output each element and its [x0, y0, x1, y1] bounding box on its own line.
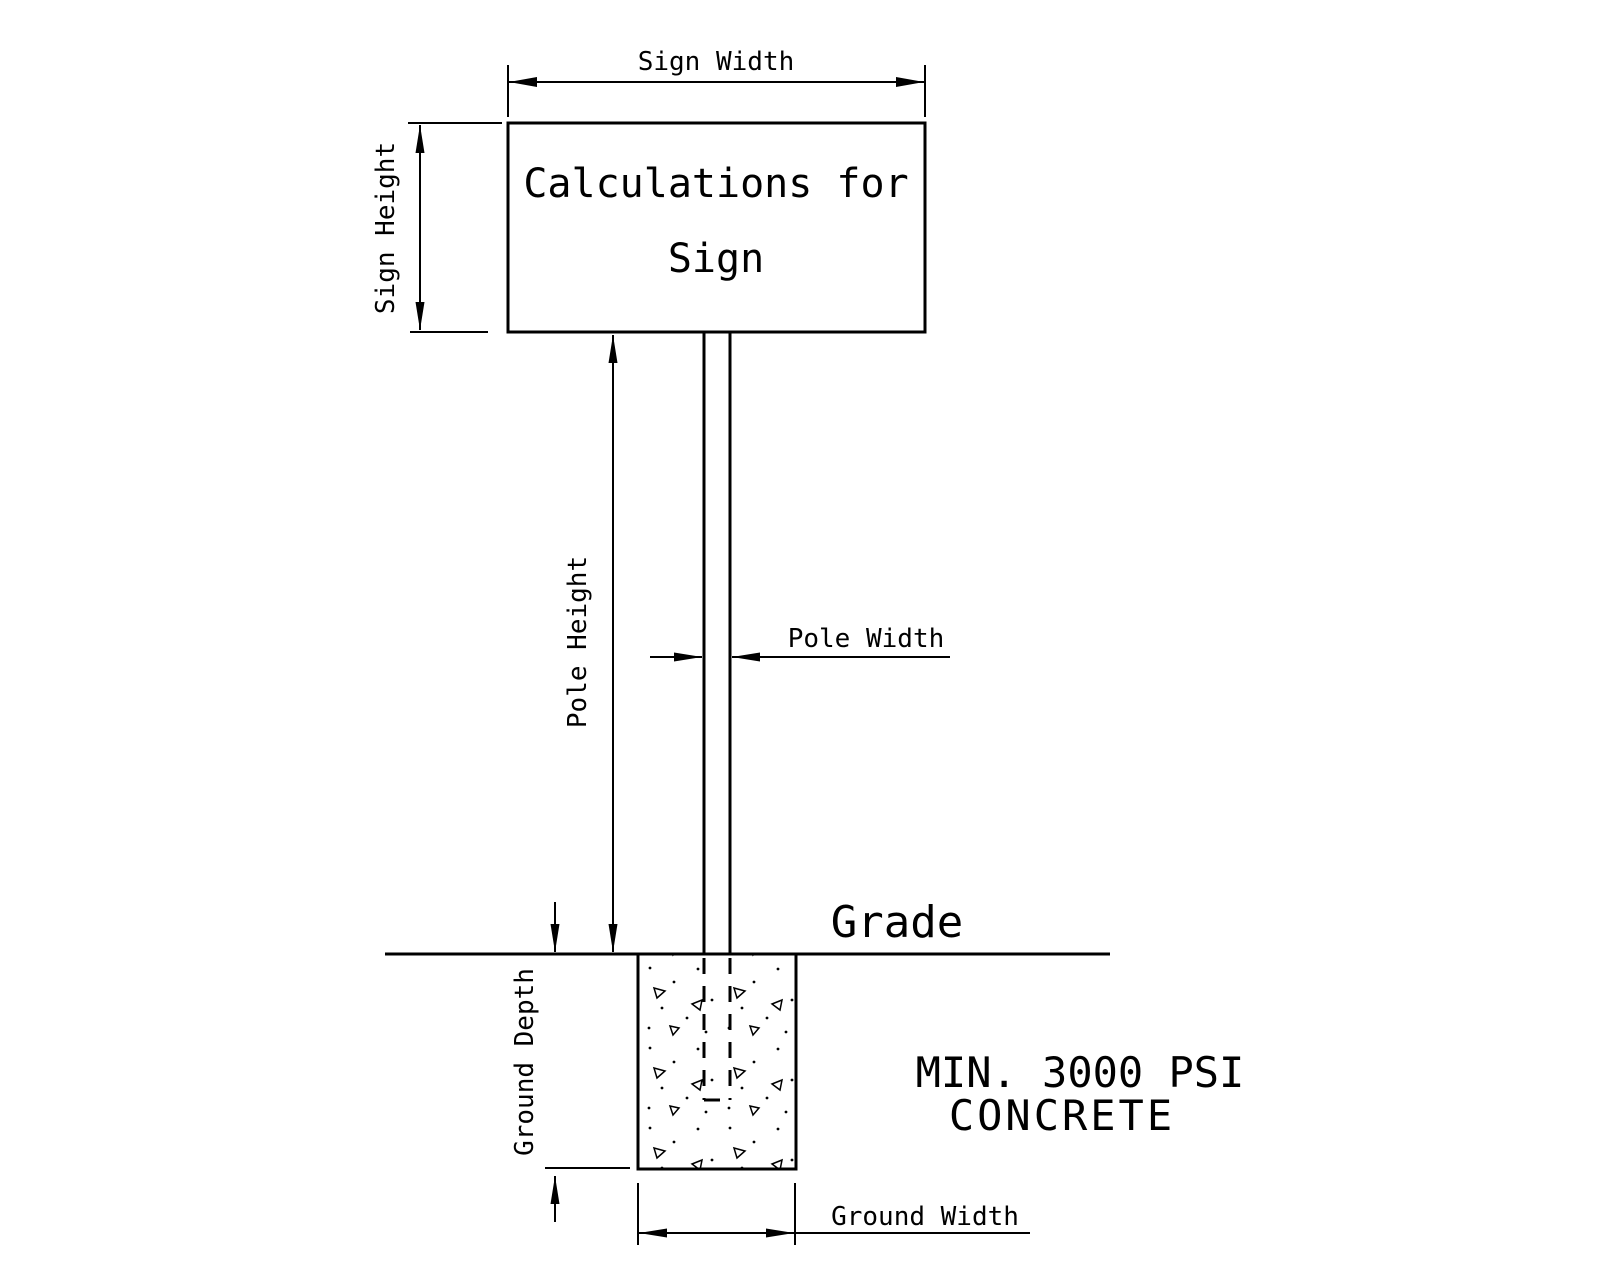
sign-pole	[704, 332, 730, 954]
ground-depth-label: Ground Depth	[510, 968, 540, 1156]
footing-outline	[638, 954, 796, 1169]
arrow-down-icon	[416, 302, 425, 330]
sign-board: Calculations for Sign	[508, 123, 925, 332]
sign-board-text-line1: Calculations for	[523, 161, 908, 207]
pole-width-label: Pole Width	[788, 624, 945, 654]
arrow-left-icon	[732, 653, 760, 662]
arrow-right-icon	[766, 1229, 794, 1238]
sign-width-label: Sign Width	[638, 47, 795, 77]
pole-height-label: Pole Height	[563, 556, 593, 728]
sign-width-dimension: Sign Width	[508, 47, 925, 117]
ground-width-dimension: Ground Width	[638, 1183, 1030, 1245]
concrete-note-line2: CONCRETE	[949, 1091, 1175, 1140]
arrow-down-icon	[551, 924, 560, 952]
concrete-note-line1: MIN. 3000 PSI	[916, 1048, 1245, 1097]
arrow-up-icon	[609, 335, 618, 363]
pole-height-dimension: Pole Height	[563, 335, 618, 952]
arrow-left-icon	[509, 77, 537, 87]
arrow-up-icon	[551, 1176, 560, 1204]
ground-width-label: Ground Width	[831, 1202, 1019, 1232]
grade-label: Grade	[831, 897, 963, 948]
sign-board-outline	[508, 123, 925, 332]
concrete-note: MIN. 3000 PSI CONCRETE	[916, 1048, 1245, 1140]
concrete-footing	[638, 954, 796, 1169]
sign-calculation-diagram: Sign Width Calculations for Sign Sign He…	[0, 0, 1600, 1280]
sign-board-text-line2: Sign	[668, 236, 764, 282]
sign-height-label: Sign Height	[371, 142, 401, 314]
arrow-down-icon	[609, 924, 618, 952]
sign-height-dimension: Sign Height	[371, 123, 502, 332]
diagram-canvas: Sign Width Calculations for Sign Sign He…	[0, 0, 1600, 1280]
arrow-left-icon	[639, 1229, 667, 1238]
grade: Grade	[385, 897, 1110, 954]
arrow-right-icon	[896, 77, 924, 87]
pole-width-dimension: Pole Width	[650, 624, 950, 662]
arrow-up-icon	[416, 125, 425, 153]
arrow-right-icon	[674, 653, 702, 662]
